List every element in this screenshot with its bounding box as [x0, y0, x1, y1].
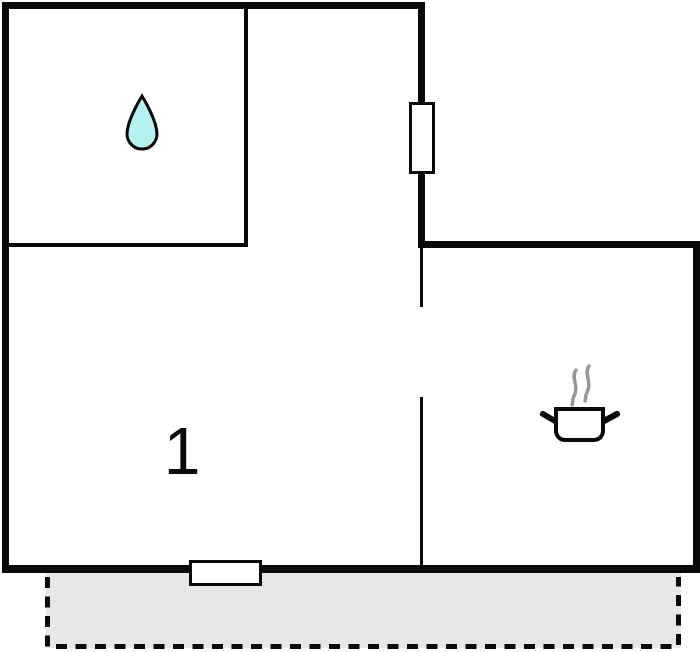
- terrace-surface: [46, 571, 681, 648]
- room-number-label: 1: [142, 418, 222, 484]
- water-drop-icon: [121, 93, 163, 155]
- pot-handle-left: [543, 414, 555, 421]
- terrace: [0, 0, 700, 652]
- wall-upper-right-above-window: [418, 2, 425, 103]
- bottom-window-door: [189, 560, 262, 586]
- water-drop-shape: [127, 96, 157, 149]
- wall-partition-lower: [420, 397, 423, 565]
- wall-bathroom-right: [244, 2, 248, 247]
- wall-partition-upper: [420, 247, 423, 307]
- wall-step: [418, 241, 700, 248]
- cooking-pot-icon: [534, 360, 626, 448]
- floor-plan: 1: [0, 0, 700, 652]
- wall-upper-right-below-window: [418, 173, 425, 248]
- wall-bathroom-bottom: [2, 243, 248, 247]
- steam-icon: [585, 366, 589, 401]
- wall-right: [693, 241, 700, 573]
- wall-left: [2, 2, 9, 573]
- pot-body: [556, 409, 603, 440]
- wall-top: [2, 2, 425, 9]
- top-window: [409, 102, 435, 174]
- steam-icon: [572, 370, 576, 405]
- wall-bottom: [2, 565, 700, 573]
- pot-handle-right: [604, 414, 617, 421]
